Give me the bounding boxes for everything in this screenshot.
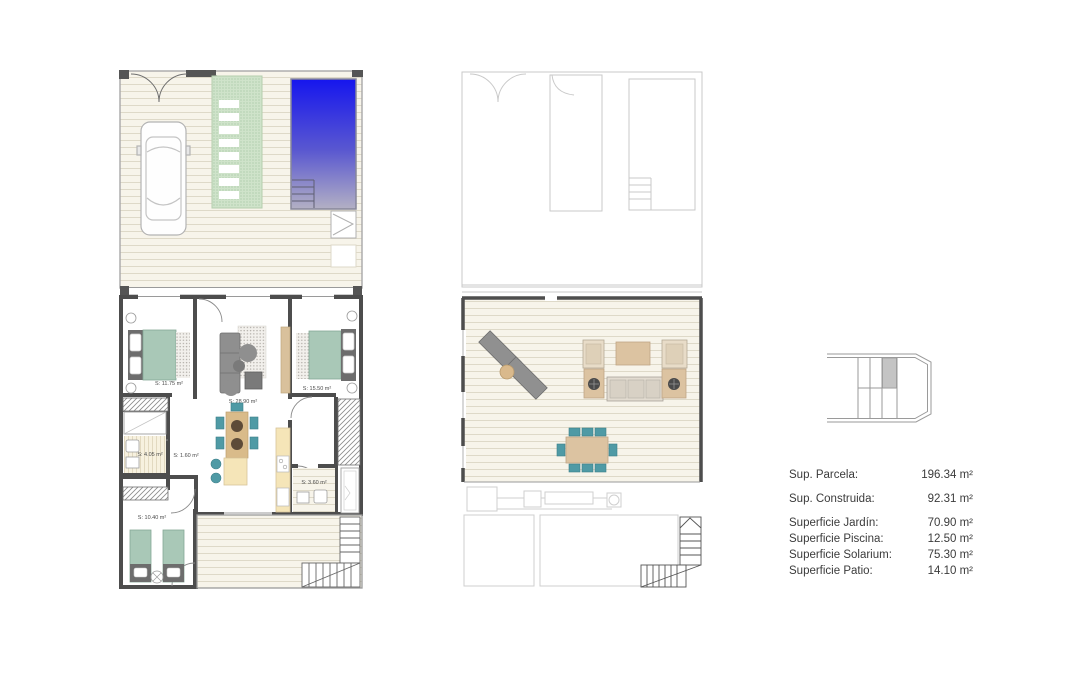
bedroom-1-area-label: S: 11.75 m² — [155, 381, 183, 387]
area-row-construida: Sup. Construida: 92.31 m² — [789, 493, 973, 506]
ghost-garden-outline — [462, 72, 702, 292]
bedroom-3-area-label: S: 10.40 m² — [138, 515, 167, 521]
area-value: 12.50 m² — [928, 533, 973, 546]
area-row-jardin: Superficie Jardín: 70.90 m² — [789, 517, 973, 530]
round-side-table — [500, 365, 514, 379]
area-label: Sup. Parcela: — [789, 469, 858, 482]
area-label: Superficie Jardín: — [789, 517, 879, 530]
solarium-staircase — [641, 517, 701, 587]
staircase — [302, 563, 360, 587]
hall-area-label: S: 1.60 m² — [173, 453, 199, 459]
area-label: Sup. Construida: — [789, 493, 875, 506]
area-value: 92.31 m² — [928, 493, 973, 506]
bathroom-1: S: 4.05 m² — [124, 412, 166, 473]
area-label: Superficie Piscina: — [789, 533, 884, 546]
windows — [138, 293, 334, 300]
bathroom-2-area-label: S: 3.60 m² — [301, 480, 327, 486]
ground-floor-plan: S: 11.75 m² S: 28.90 m² — [113, 66, 367, 594]
swimming-pool — [291, 79, 356, 209]
area-row-parcela: Sup. Parcela: 196.34 m² — [789, 469, 973, 482]
area-row-patio: Superficie Patio: 14.10 m² — [789, 565, 973, 578]
area-value: 75.30 m² — [928, 549, 973, 562]
stepping-stone-path — [212, 76, 262, 208]
area-row-solarium: Superficie Solarium: 75.30 m² — [789, 549, 973, 562]
upper-floor-plan — [454, 66, 708, 594]
kitchen-counter — [276, 428, 290, 512]
stair-ladder — [340, 517, 360, 563]
area-summary: Sup. Parcela: 196.34 m² Sup. Construida:… — [789, 469, 973, 581]
area-row-piscina: Superficie Piscina: 12.50 m² — [789, 533, 973, 546]
single-bed — [130, 530, 151, 582]
parked-car — [137, 122, 190, 235]
area-value: 196.34 m² — [921, 469, 973, 482]
floor-plan-sheet: S: 11.75 m² S: 28.90 m² — [0, 0, 1070, 682]
bedroom-2-area-label: S: 15.50 m² — [303, 386, 332, 392]
bathroom-1-area-label: S: 4.05 m² — [137, 452, 163, 458]
area-label: Superficie Solarium: — [789, 549, 892, 562]
site-key-plan — [820, 346, 940, 430]
area-label: Superficie Patio: — [789, 565, 873, 578]
bathroom-2: S: 3.60 m² — [293, 468, 359, 513]
single-bed — [163, 530, 184, 582]
area-value: 70.90 m² — [928, 517, 973, 530]
area-value: 14.10 m² — [928, 565, 973, 578]
highlighted-unit-cell — [883, 358, 897, 388]
patio-deck — [197, 515, 362, 588]
